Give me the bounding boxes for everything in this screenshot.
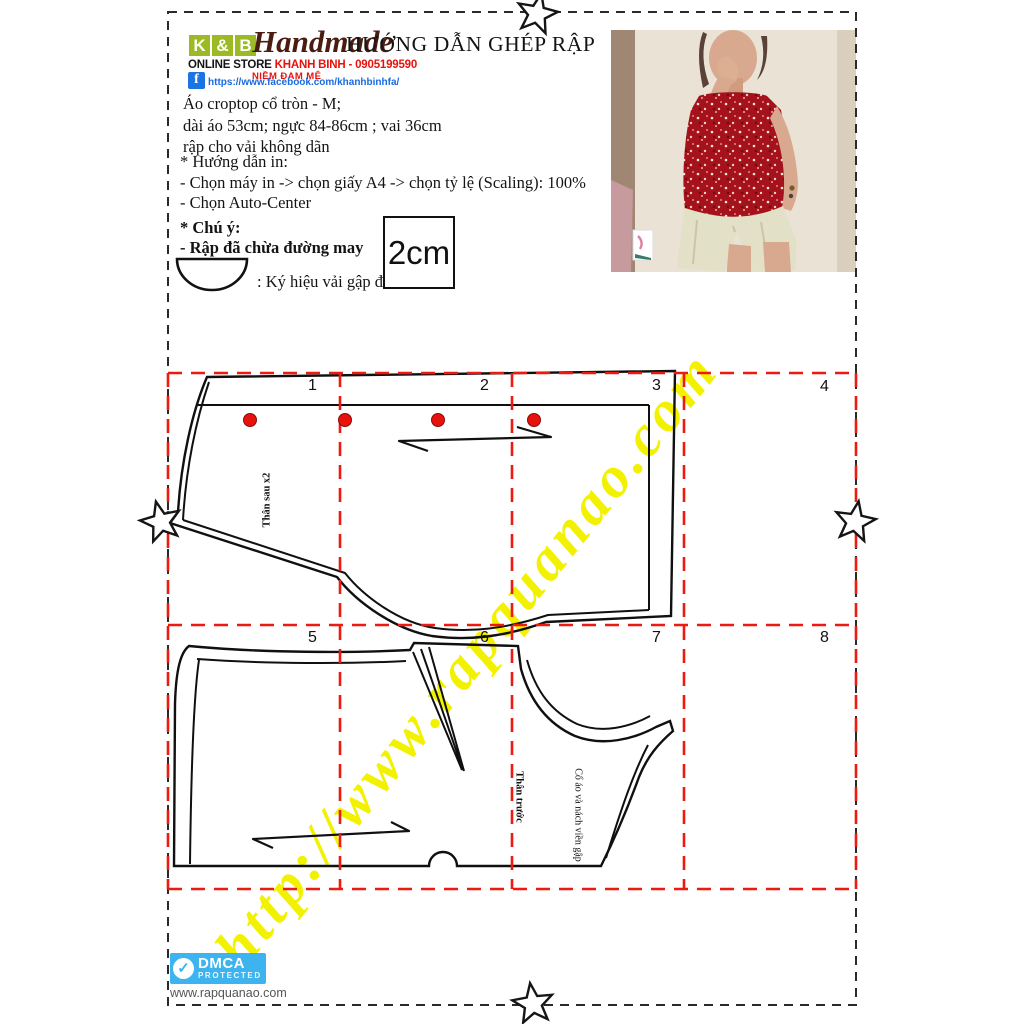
fold-symbol-icon [177, 259, 247, 290]
label-front-piece: Thân trước [514, 771, 525, 823]
grainline-arrow-front [253, 822, 409, 848]
garment-specs: Áo croptop cổ tròn - M; dài áo 53cm; ngự… [183, 93, 442, 158]
logo-letter-k: K [189, 35, 210, 56]
pattern-piece-front [174, 643, 673, 866]
pattern-piece-back [170, 371, 675, 638]
assembly-grid [168, 373, 856, 889]
notes-heading: * Chú ý: [180, 218, 363, 238]
label-back-piece: Thân sau x2 [262, 473, 273, 528]
dmca-title: DMCA [198, 956, 262, 971]
grainline-arrow-back [399, 427, 551, 451]
notes-block: * Chú ý: - Rập đã chừa đường may [180, 218, 363, 258]
logo-kb: K & B [189, 35, 256, 56]
grid-cell-number: 7 [652, 629, 661, 647]
print-instructions: * Hướng dẫn in: - Chọn máy in -> chọn gi… [180, 152, 586, 214]
facebook-icon: f [188, 72, 205, 89]
label-binding-piece: Cổ áo và nách viền gập [573, 768, 584, 862]
spec-line: Áo croptop cổ tròn - M; [183, 93, 442, 115]
grid-cell-number: 4 [820, 378, 829, 396]
facebook-row: f https://www.facebook.com/khanhbinhfa/ [188, 72, 399, 89]
spec-line: dài áo 53cm; ngực 84-86cm ; vai 36cm [183, 115, 442, 137]
grid-cell-number: 2 [480, 377, 489, 395]
instruction-sheet: http://www.rapquanao.com [0, 0, 1024, 1024]
notch-dots [244, 414, 541, 427]
grid-cell-number: 6 [480, 629, 489, 647]
fold-symbol-label: : Ký hiệu vải gập đôi [257, 272, 396, 292]
grid-cell-number: 5 [308, 629, 317, 647]
logo-letter-amp: & [212, 35, 233, 56]
dart-lines [413, 647, 464, 771]
grid-cell-number: 8 [820, 629, 829, 647]
star-icon-bottom [510, 980, 555, 1023]
grid-cell-number: 3 [652, 377, 661, 395]
star-icon-top [514, 0, 561, 35]
print-step: - Chọn Auto-Center [180, 193, 586, 214]
store-contact: KHANH BINH - 0905199590 [275, 59, 417, 71]
check-icon: ✓ [173, 958, 194, 979]
star-icon-left [137, 497, 185, 544]
dmca-block: ✓ DMCA PROTECTED www.rapquanao.com [170, 953, 287, 1000]
store-info-line: ONLINE STORE KHANH BINH - 0905199590 [188, 59, 417, 71]
facebook-link[interactable]: https://www.facebook.com/khanhbinhfa/ [208, 77, 399, 89]
print-step: - Chọn máy in -> chọn giấy A4 -> chọn tỷ… [180, 173, 586, 194]
notes-line: - Rập đã chừa đường may [180, 238, 363, 258]
dmca-subtitle: PROTECTED [198, 971, 262, 981]
seam-allowance-box: 2cm [383, 216, 455, 289]
grid-cell-number: 1 [308, 377, 317, 395]
page-title: HƯỚNG DẪN GHÉP RẬP [346, 32, 595, 57]
print-heading: * Hướng dẫn in: [180, 152, 586, 173]
dmca-badge[interactable]: ✓ DMCA PROTECTED [170, 953, 266, 984]
store-label: ONLINE STORE [188, 59, 272, 71]
site-url: www.rapquanao.com [170, 986, 287, 1000]
